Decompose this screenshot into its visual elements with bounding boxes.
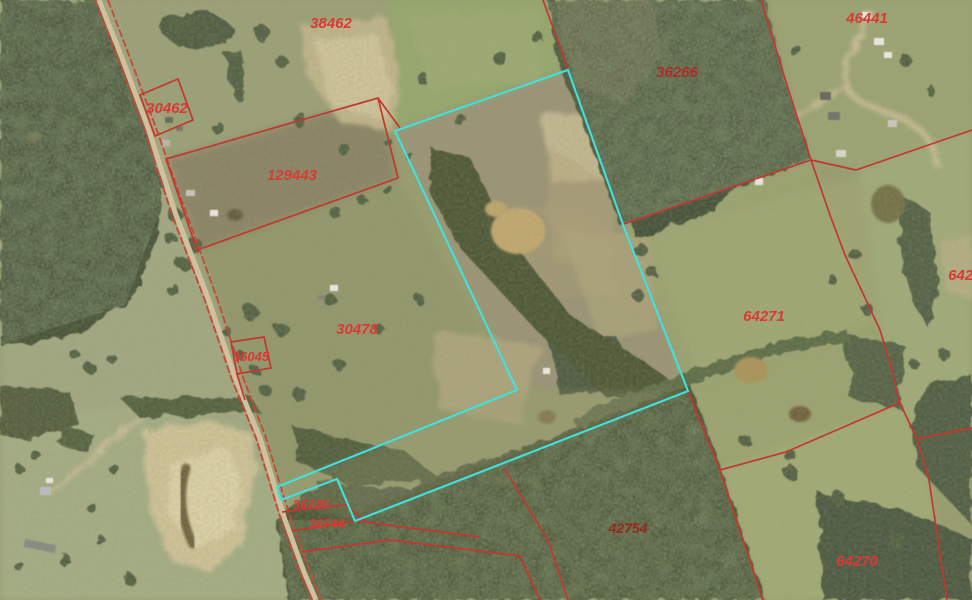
svg-text:36746: 36746 [293, 497, 330, 512]
svg-text:42754: 42754 [608, 520, 648, 536]
svg-text:64274: 64274 [948, 267, 972, 284]
svg-text:30462: 30462 [146, 100, 188, 117]
svg-text:64270: 64270 [836, 553, 878, 570]
svg-text:30478: 30478 [336, 321, 378, 338]
svg-text:36266: 36266 [656, 64, 698, 81]
svg-text:36045: 36045 [233, 349, 270, 364]
svg-text:36744: 36744 [309, 516, 346, 531]
svg-text:64271: 64271 [743, 308, 785, 325]
svg-text:38462: 38462 [310, 15, 352, 32]
svg-text:46441: 46441 [845, 10, 888, 27]
svg-text:129443: 129443 [267, 167, 318, 184]
